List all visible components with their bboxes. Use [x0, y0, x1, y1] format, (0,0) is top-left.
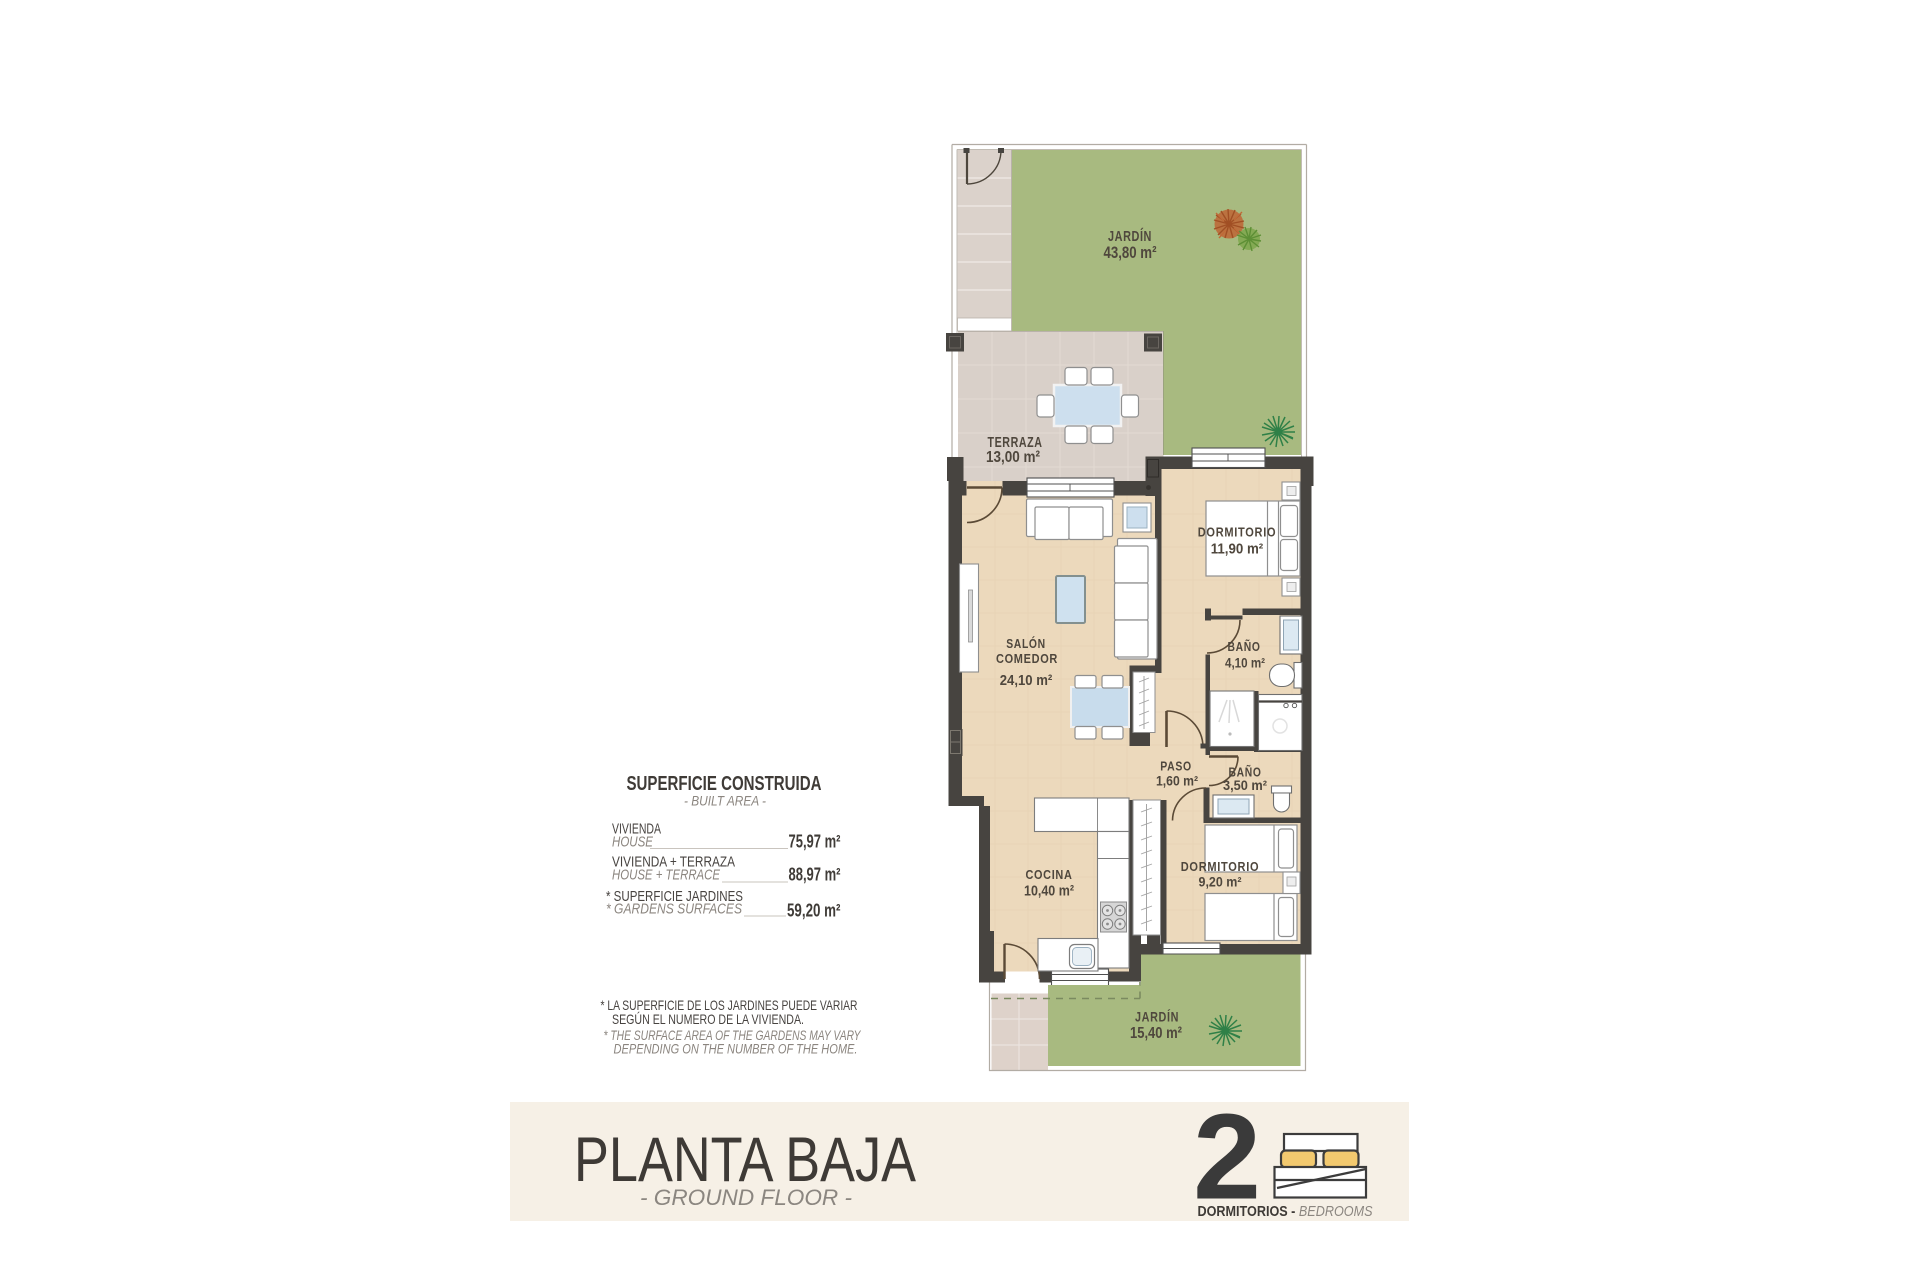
svg-text:JARDÍN: JARDÍN: [1135, 1009, 1179, 1025]
svg-text:COCINA: COCINA: [1026, 867, 1073, 882]
svg-text:SALÓN: SALÓN: [1006, 636, 1046, 651]
svg-text:* GARDENS SURFACES: * GARDENS SURFACES: [606, 901, 742, 918]
svg-text:- BUILT AREA -: - BUILT AREA -: [684, 793, 766, 809]
svg-text:- GROUND FLOOR -: - GROUND FLOOR -: [640, 1185, 852, 1210]
svg-text:HOUSE + TERRACE: HOUSE + TERRACE: [612, 867, 721, 884]
svg-text:HOUSE: HOUSE: [612, 834, 654, 851]
svg-text:9,20 m²: 9,20 m²: [1199, 874, 1242, 890]
svg-text:DEPENDING ON THE NUMBER OF THE: DEPENDING ON THE NUMBER OF THE HOME.: [614, 1041, 858, 1057]
svg-text:24,10 m²: 24,10 m²: [1000, 672, 1053, 689]
svg-text:SEGÚN EL NUMERO DE LA VIVIENDA: SEGÚN EL NUMERO DE LA VIVIENDA.: [612, 1011, 804, 1027]
svg-text:DORMITORIO: DORMITORIO: [1198, 526, 1277, 540]
svg-text:10,40 m²: 10,40 m²: [1024, 883, 1074, 900]
svg-text:4,10 m²: 4,10 m²: [1225, 655, 1265, 671]
svg-text:11,90 m²: 11,90 m²: [1211, 542, 1264, 558]
svg-text:1,60 m²: 1,60 m²: [1156, 773, 1198, 789]
svg-text:75,97 m²: 75,97 m²: [789, 832, 841, 852]
svg-text:DORMITORIOS - BEDROOMS: DORMITORIOS - BEDROOMS: [1198, 1204, 1373, 1220]
svg-text:PASO: PASO: [1160, 759, 1192, 774]
svg-text:JARDÍN: JARDÍN: [1108, 228, 1152, 245]
svg-text:13,00 m²: 13,00 m²: [986, 449, 1040, 466]
svg-text:3,50 m²: 3,50 m²: [1223, 777, 1267, 793]
svg-text:COMEDOR: COMEDOR: [996, 651, 1058, 666]
svg-text:DORMITORIO: DORMITORIO: [1181, 860, 1260, 874]
svg-text:43,80 m²: 43,80 m²: [1104, 244, 1157, 262]
svg-text:BAÑO: BAÑO: [1228, 639, 1261, 654]
svg-text:88,97 m²: 88,97 m²: [789, 865, 841, 885]
svg-text:15,40 m²: 15,40 m²: [1130, 1025, 1182, 1042]
svg-text:59,20 m²: 59,20 m²: [787, 901, 841, 921]
